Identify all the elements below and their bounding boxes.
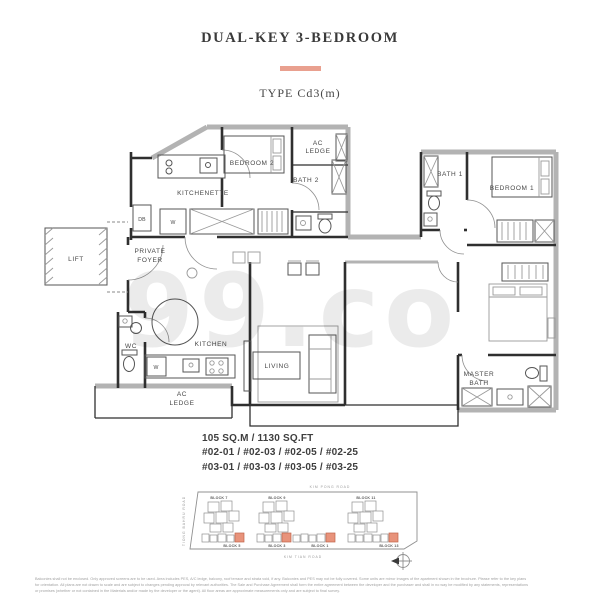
db-closet: DB	[133, 205, 151, 231]
sink-icon	[183, 359, 199, 372]
washer2-label: W	[153, 365, 158, 371]
cabinet-icon	[233, 252, 245, 263]
shower-icon	[528, 386, 551, 407]
master-bath-label2: BATH	[469, 380, 488, 387]
hob-icon	[206, 358, 228, 375]
room-label-bedroom2: BEDROOM 2	[230, 160, 274, 167]
unit-numbers-level2: #02-01 / #02-03 / #02-05 / #02-25	[202, 446, 358, 460]
room-label-lift: LIFT	[68, 256, 84, 263]
foyer-label2: FOYER	[137, 257, 162, 264]
block-label: BLOCK 13	[379, 544, 398, 548]
sink-icon	[424, 213, 437, 226]
road-label-left: TIONG BAHRU ROAD	[182, 496, 186, 546]
floor-plan: LIFT KITCHENETTE DB	[45, 127, 556, 426]
db-label: DB	[138, 217, 146, 223]
compass-icon	[391, 552, 412, 570]
stool-icon	[187, 268, 197, 278]
door-arc	[292, 183, 319, 210]
cabinet-icon	[248, 252, 260, 263]
door-arc	[185, 237, 217, 269]
master-bath-label1: MASTER	[464, 371, 495, 378]
room-label-kitchen: KITCHEN	[195, 341, 228, 348]
site-plan-block-cluster	[204, 501, 239, 532]
room-label-bedroom1: BEDROOM 1	[490, 185, 534, 192]
block-label: BLOCK 5	[223, 544, 240, 548]
door-arc	[467, 200, 495, 228]
room-label-living: LIVING	[265, 363, 290, 370]
brochure-page: DUAL-KEY 3-BEDROOM TYPE Cd3(m)	[0, 0, 600, 600]
highlighted-unit	[282, 533, 291, 542]
room-label-bath2: BATH 2	[293, 177, 319, 184]
dining-chair-icon	[306, 261, 319, 275]
wc: WC	[119, 316, 142, 372]
block-label: BLOCK 11	[356, 496, 375, 500]
unit-info: 105 SQ.M / 1130 SQ.FT #02-01 / #02-03 / …	[202, 432, 358, 475]
closet-hatch-icon	[258, 209, 288, 234]
exterior-walls	[95, 127, 556, 410]
wardrobe-icon	[190, 209, 254, 234]
site-plan-block-cluster	[348, 501, 383, 532]
ac-ledge-top-label1: AC	[313, 140, 323, 147]
unit-area: 105 SQ.M / 1130 SQ.FT	[202, 432, 358, 446]
toilet-icon	[318, 214, 332, 233]
disclaimer: Balconies shall not be enclosed. Only ap…	[35, 576, 575, 595]
private-foyer: PRIVATE FOYER	[134, 248, 260, 278]
ac-ledge-top: AC LEDGE	[305, 134, 347, 161]
highlighted-unit	[326, 533, 335, 542]
wardrobe-icon	[535, 220, 554, 242]
toilet-icon	[526, 366, 548, 381]
unit-numbers-level3: #03-01 / #03-03 / #03-05 / #03-25	[202, 461, 358, 475]
kitchenette: KITCHENETTE	[158, 155, 229, 197]
sink-icon	[296, 216, 311, 230]
site-plan: KIM PONG ROAD KIM TIAN ROAD TIONG BAHRU …	[182, 485, 417, 570]
stove-icon	[200, 158, 217, 173]
laundry-wardrobe-row: W	[160, 209, 288, 234]
site-plan-lowrise-strip	[202, 533, 398, 542]
kitchen: W KITCHEN	[145, 299, 235, 378]
disclaimer-line3: or promises (whether or not contained in…	[35, 588, 575, 594]
toilet-icon	[427, 191, 441, 210]
bath2: BATH 2	[293, 160, 346, 233]
room-label-kitchenette: KITCHENETTE	[177, 190, 229, 197]
bath1: BATH 1	[424, 156, 463, 226]
master-bedroom	[489, 263, 555, 341]
room-label-bath1: BATH 1	[437, 171, 463, 178]
block-label: BLOCK 7	[210, 496, 227, 500]
sink-icon	[166, 160, 172, 174]
dining-chair-icon	[288, 261, 301, 275]
ac-ledge-bottom: AC LEDGE	[169, 391, 194, 407]
toilet-icon	[122, 350, 137, 372]
ac-ledge-top-label2: LEDGE	[305, 148, 330, 155]
door-arc	[440, 230, 464, 254]
master-bath: MASTER BATH	[462, 366, 551, 407]
block-label: BLOCK 3	[268, 544, 285, 548]
washer-icon: W	[147, 357, 166, 376]
sink-icon	[119, 316, 132, 327]
shower-icon	[424, 156, 438, 187]
block-label: BLOCK 1	[311, 544, 328, 548]
vanity-icon	[462, 388, 492, 406]
ac-ledge-bottom-label2: LEDGE	[169, 400, 194, 407]
site-plan-block-cluster	[259, 501, 294, 532]
ac-ledge-bottom-label1: AC	[177, 391, 187, 398]
wardrobe-hatch-icon	[497, 220, 533, 242]
highlighted-unit	[235, 533, 244, 542]
foyer-label1: PRIVATE	[134, 248, 165, 255]
bedroom1: BEDROOM 1	[490, 157, 554, 242]
wardrobe-hatch-icon	[502, 263, 548, 281]
block-label: BLOCK 9	[268, 496, 285, 500]
washer1-label: W	[170, 220, 175, 226]
lift: LIFT	[45, 222, 128, 292]
living-room: LIVING	[244, 261, 338, 402]
sink-icon	[497, 389, 523, 405]
highlighted-unit	[389, 533, 398, 542]
ac-unit-icon	[336, 134, 347, 161]
room-label-wc: WC	[125, 343, 137, 350]
door-arc	[145, 318, 169, 342]
washer-icon: W	[160, 209, 186, 234]
road-label-top: KIM PONG ROAD	[310, 485, 351, 489]
basin-icon	[131, 323, 142, 334]
bed-icon	[224, 136, 284, 173]
road-label-bottom: KIM TIAN ROAD	[284, 555, 322, 559]
bedroom2: BEDROOM 2	[224, 136, 284, 173]
door-arcs	[128, 150, 495, 381]
floor-plan-drawing: LIFT KITCHENETTE DB	[0, 0, 600, 600]
bed-icon	[489, 284, 547, 341]
sofa-icon	[309, 335, 336, 393]
door-arc	[438, 262, 458, 282]
